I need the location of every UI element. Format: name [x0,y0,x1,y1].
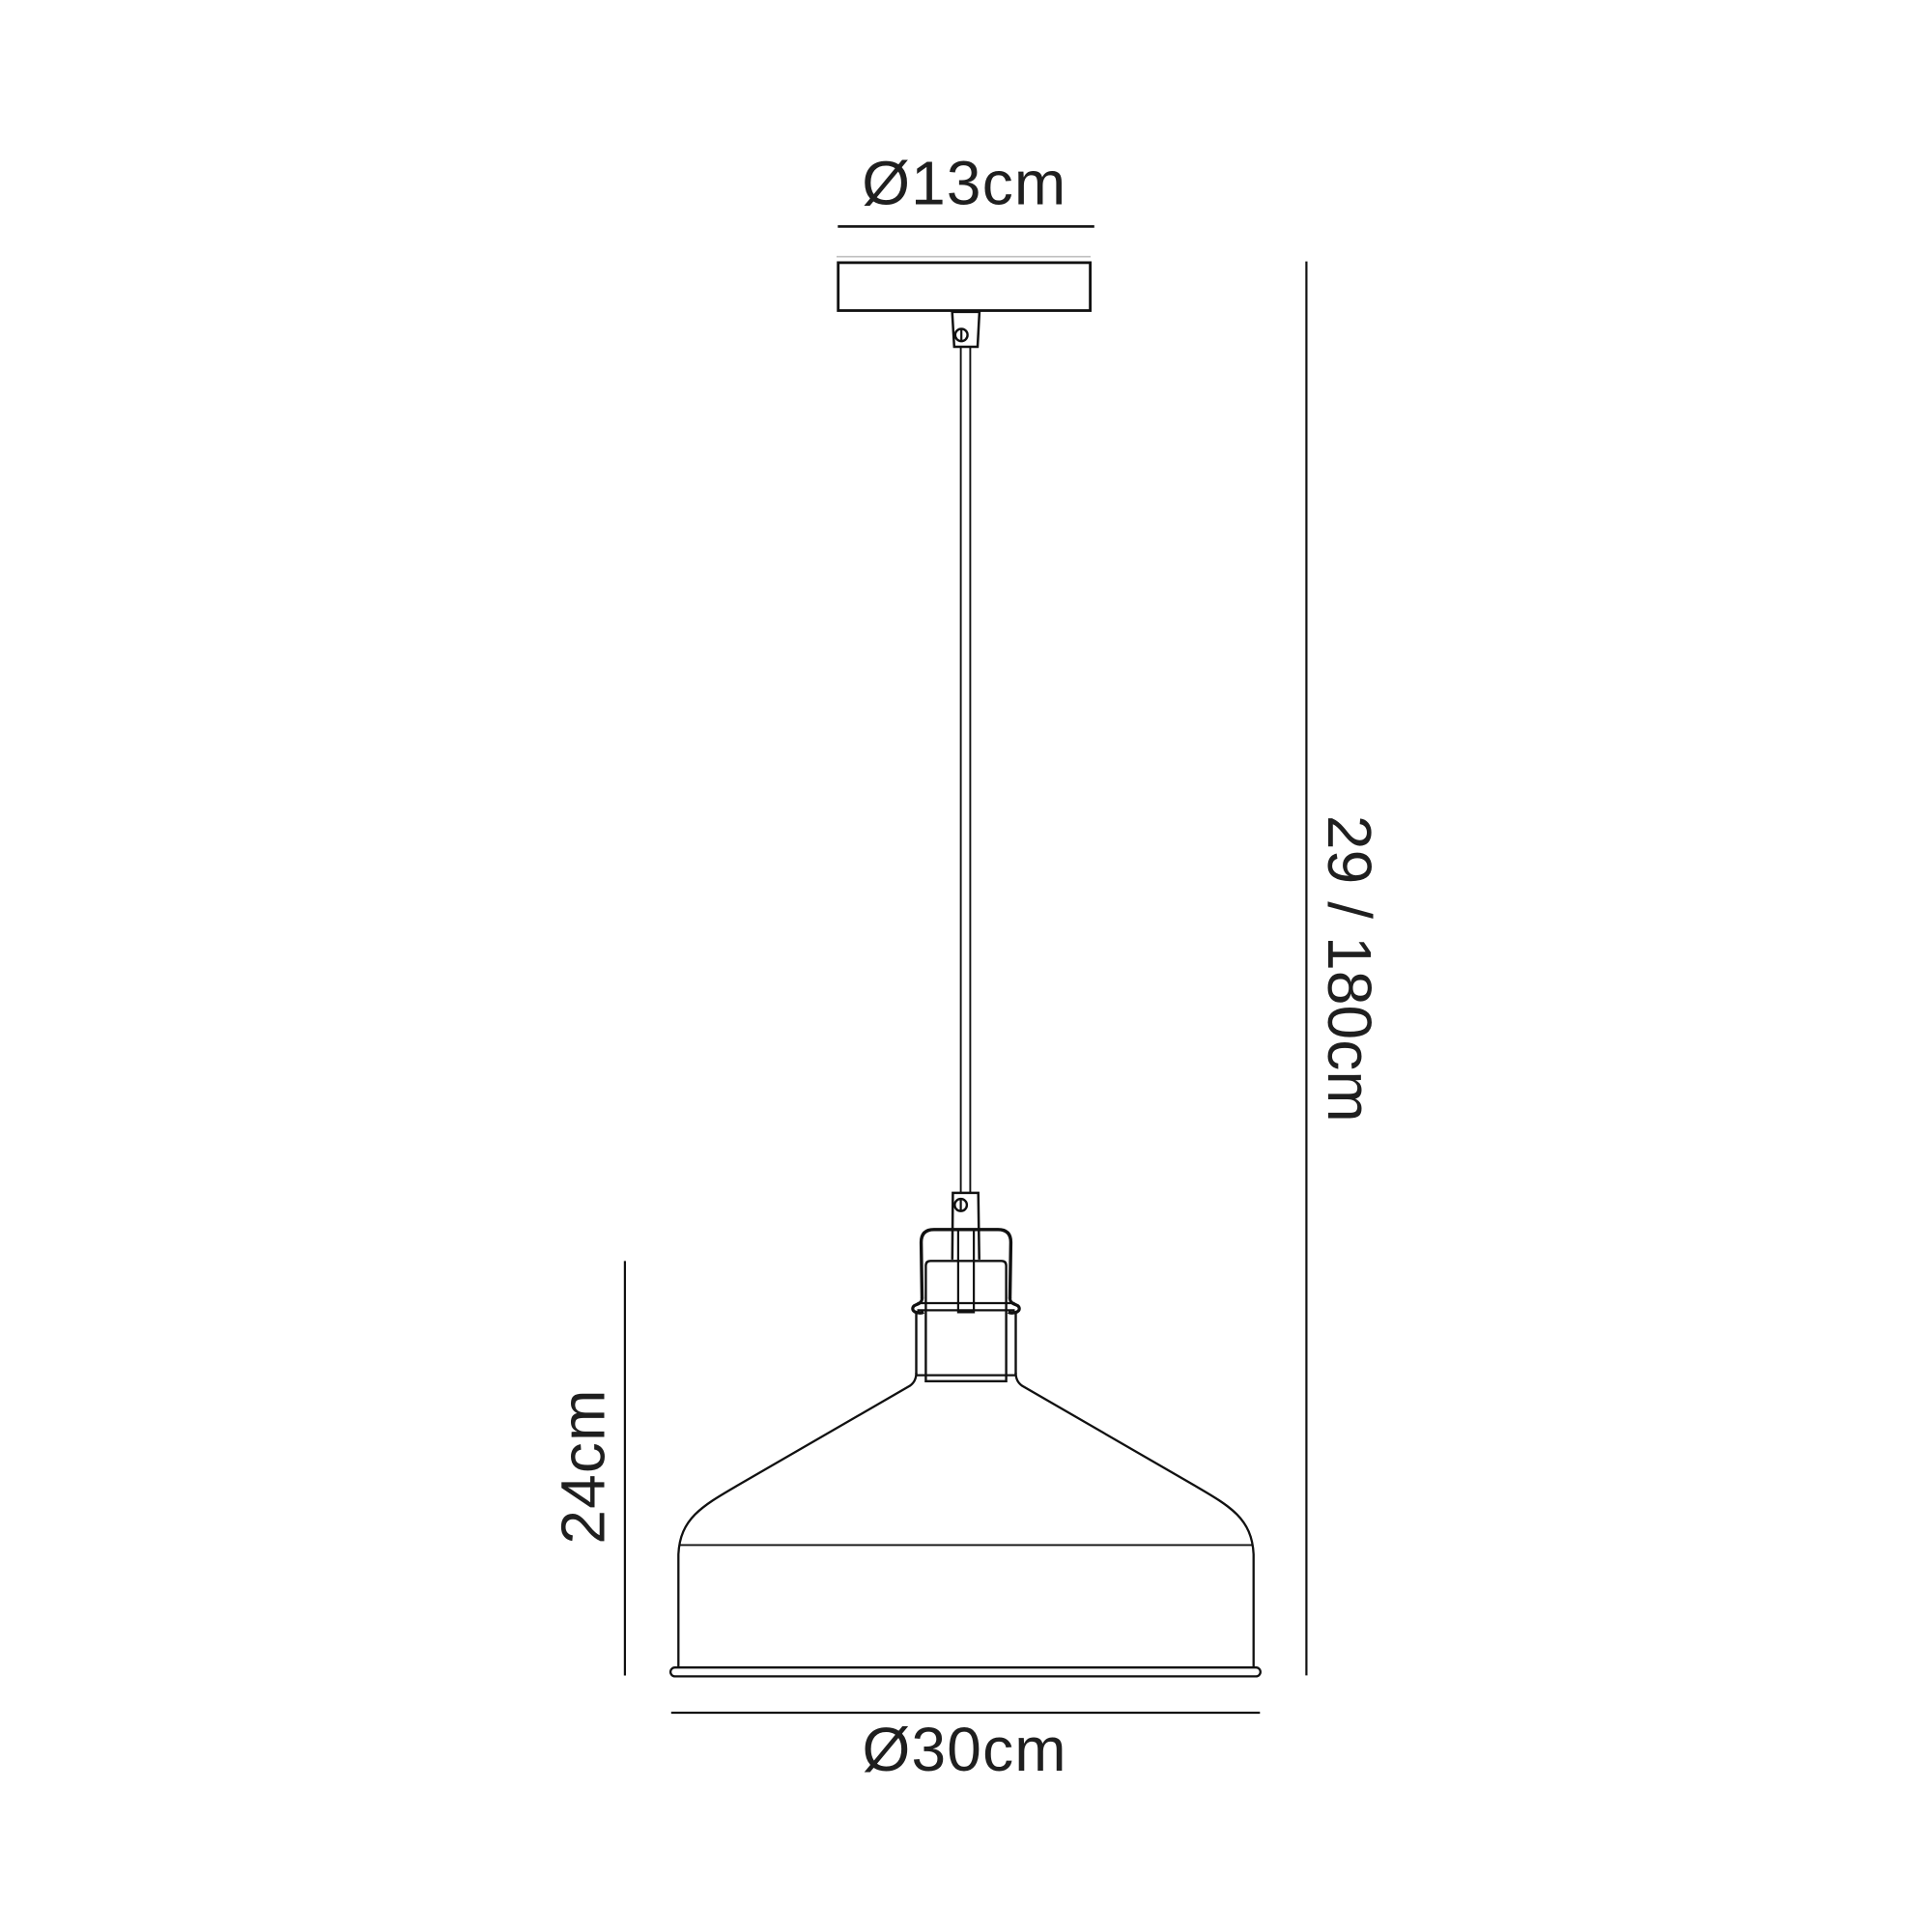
svg-text:Ø13cm: Ø13cm [862,149,1066,218]
svg-text:24cm: 24cm [549,1388,618,1544]
svg-text:Ø30cm: Ø30cm [863,1715,1067,1784]
svg-text:29 / 180cm: 29 / 180cm [1315,815,1384,1122]
